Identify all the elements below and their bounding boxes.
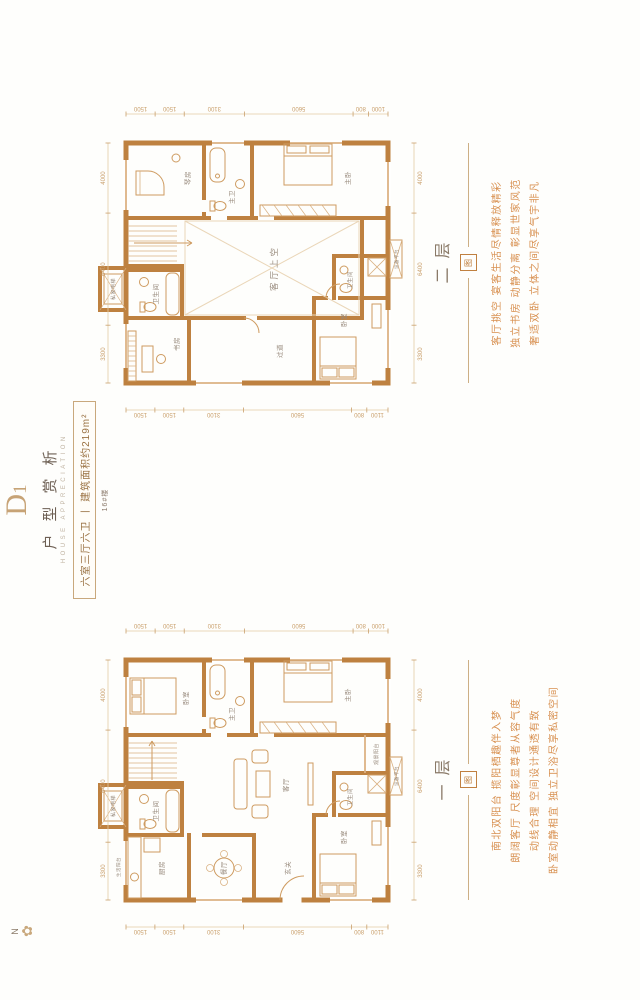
svg-text:3300: 3300 <box>418 864 424 878</box>
svg-text:私家电梯: 私家电梯 <box>110 795 117 817</box>
svg-text:1000: 1000 <box>371 622 385 628</box>
slogan-line: 南北双阳台 揽阳栖趣伴入梦 <box>488 610 507 950</box>
svg-text:800: 800 <box>353 411 364 417</box>
svg-text:1100: 1100 <box>370 928 384 934</box>
svg-text:1100: 1100 <box>370 411 384 417</box>
svg-text:卫生间: 卫生间 <box>151 801 160 822</box>
seal-icon: 图 <box>460 255 477 272</box>
svg-text:4000: 4000 <box>101 171 107 185</box>
compass-rose-icon: ✿ <box>20 914 35 948</box>
floorplan-second-floor: 3300640040003300640040001500150031005600… <box>84 98 429 428</box>
floorplan-first-floor: 3300640040003300640040001500150031005600… <box>84 615 429 945</box>
svg-text:观景阳台: 观景阳台 <box>373 743 380 765</box>
floor-section-second: 3300640040003300640040001500150031005600… <box>84 93 545 433</box>
svg-text:6400: 6400 <box>101 262 107 276</box>
svg-text:4000: 4000 <box>418 688 424 702</box>
svg-text:卧室: 卧室 <box>181 691 190 705</box>
svg-text:5600: 5600 <box>290 928 304 934</box>
plan-code-number: 1 <box>10 484 31 494</box>
svg-text:主卫: 主卫 <box>227 707 236 721</box>
svg-text:1500: 1500 <box>162 411 176 417</box>
slogan-line: 卧室动静相宜 独立卫浴尽享私密空间 <box>545 610 564 950</box>
svg-text:过道: 过道 <box>275 344 284 358</box>
plan-code: D1 <box>2 0 36 1000</box>
svg-text:1500: 1500 <box>133 411 147 417</box>
page-title: 户型赏析 <box>39 0 60 1000</box>
svg-text:3100: 3100 <box>206 411 220 417</box>
divider-line <box>468 660 469 765</box>
compass: N ✿ <box>10 914 35 948</box>
stairs <box>128 741 177 780</box>
slogan-list: 客厅挑空 宴客生活尽情释放精彩 独立书房 动静分离 彰显世家风范 奢适双卧 立体… <box>488 93 545 433</box>
floor-label: 一层 <box>435 610 453 950</box>
svg-text:5600: 5600 <box>291 105 305 111</box>
svg-text:6400: 6400 <box>418 262 424 276</box>
svg-text:1000: 1000 <box>371 105 385 111</box>
slogan-line: 朗阔客厅 尺度彰显尊者从容气度 <box>507 610 526 950</box>
svg-text:卧室: 卧室 <box>339 830 348 844</box>
svg-text:800: 800 <box>355 622 366 628</box>
svg-text:卫生间: 卫生间 <box>151 284 160 305</box>
slogan-line: 独立书房 动静分离 彰显世家风范 <box>507 93 526 433</box>
divider-line <box>468 143 469 248</box>
svg-text:生活阳台: 生活阳台 <box>115 857 122 877</box>
svg-text:4000: 4000 <box>101 688 107 702</box>
svg-text:3100: 3100 <box>207 105 221 111</box>
svg-text:3300: 3300 <box>101 347 107 361</box>
svg-text:厨房: 厨房 <box>157 861 166 875</box>
svg-text:1500: 1500 <box>133 928 147 934</box>
svg-text:玄关: 玄关 <box>283 861 292 875</box>
svg-text:1500: 1500 <box>162 622 176 628</box>
stairs <box>128 226 192 261</box>
plan-code-letter: D <box>0 494 33 516</box>
caption-divider: 图 <box>460 143 477 383</box>
svg-text:800: 800 <box>353 928 364 934</box>
svg-text:800: 800 <box>355 105 366 111</box>
poster-viewport: N ✿ D1 户型赏析 HOUSE APPRECIATION 六室三厅六卫 丨 … <box>0 0 640 1000</box>
svg-text:主卧: 主卧 <box>343 171 352 185</box>
svg-text:设备平台: 设备平台 <box>393 766 400 786</box>
slogan-line: 动线合理 空间设计通透有致 <box>526 610 545 950</box>
svg-text:主卧: 主卧 <box>343 688 352 702</box>
svg-text:1500: 1500 <box>162 928 176 934</box>
floor-section-first: 3300640040003300640040001500150031005600… <box>84 610 564 950</box>
floor-caption-second: 二层 图 客厅挑空 宴客生活尽情释放精彩 独立书房 动静分离 彰显世家风范 奢适… <box>435 93 545 433</box>
svg-text:3100: 3100 <box>207 622 221 628</box>
svg-text:琴房: 琴房 <box>183 171 192 185</box>
svg-text:书房: 书房 <box>172 337 181 351</box>
svg-text:1500: 1500 <box>162 105 176 111</box>
slogan-list: 南北双阳台 揽阳栖趣伴入梦 朗阔客厅 尺度彰显尊者从容气度 动线合理 空间设计通… <box>488 610 564 950</box>
svg-text:5600: 5600 <box>291 622 305 628</box>
floor-label: 二层 <box>435 93 453 433</box>
svg-text:1500: 1500 <box>133 622 147 628</box>
page-subtitle-en: HOUSE APPRECIATION <box>61 0 67 1000</box>
svg-text:3300: 3300 <box>418 347 424 361</box>
svg-text:卫生间: 卫生间 <box>346 271 354 289</box>
svg-text:3100: 3100 <box>206 928 220 934</box>
svg-text:设备平台: 设备平台 <box>393 249 400 269</box>
svg-text:6400: 6400 <box>418 779 424 793</box>
svg-text:餐厅: 餐厅 <box>219 861 228 875</box>
svg-text:5600: 5600 <box>290 411 304 417</box>
svg-text:卫生间: 卫生间 <box>346 788 354 806</box>
slogan-line: 奢适双卧 立体之间尽享气宇非凡 <box>526 93 545 433</box>
divider-line <box>468 279 469 384</box>
svg-text:4000: 4000 <box>418 171 424 185</box>
floorplan-poster: N ✿ D1 户型赏析 HOUSE APPRECIATION 六室三厅六卫 丨 … <box>0 0 640 1000</box>
svg-text:主卫: 主卫 <box>227 190 236 204</box>
floor-caption-first: 一层 图 南北双阳台 揽阳栖趣伴入梦 朗阔客厅 尺度彰显尊者从容气度 动线合理 … <box>435 610 564 950</box>
svg-text:客厅上空: 客厅上空 <box>269 245 279 291</box>
caption-divider: 图 <box>460 660 477 900</box>
svg-text:3300: 3300 <box>101 864 107 878</box>
seal-icon: 图 <box>460 772 477 789</box>
svg-text:客厅: 客厅 <box>281 778 290 792</box>
doors <box>244 284 340 333</box>
svg-text:6400: 6400 <box>101 779 107 793</box>
divider-line <box>468 796 469 901</box>
slogan-line: 客厅挑空 宴客生活尽情释放精彩 <box>488 93 507 433</box>
svg-text:私家电梯: 私家电梯 <box>110 278 117 300</box>
svg-text:1500: 1500 <box>133 105 147 111</box>
svg-text:卧室: 卧室 <box>339 313 348 327</box>
